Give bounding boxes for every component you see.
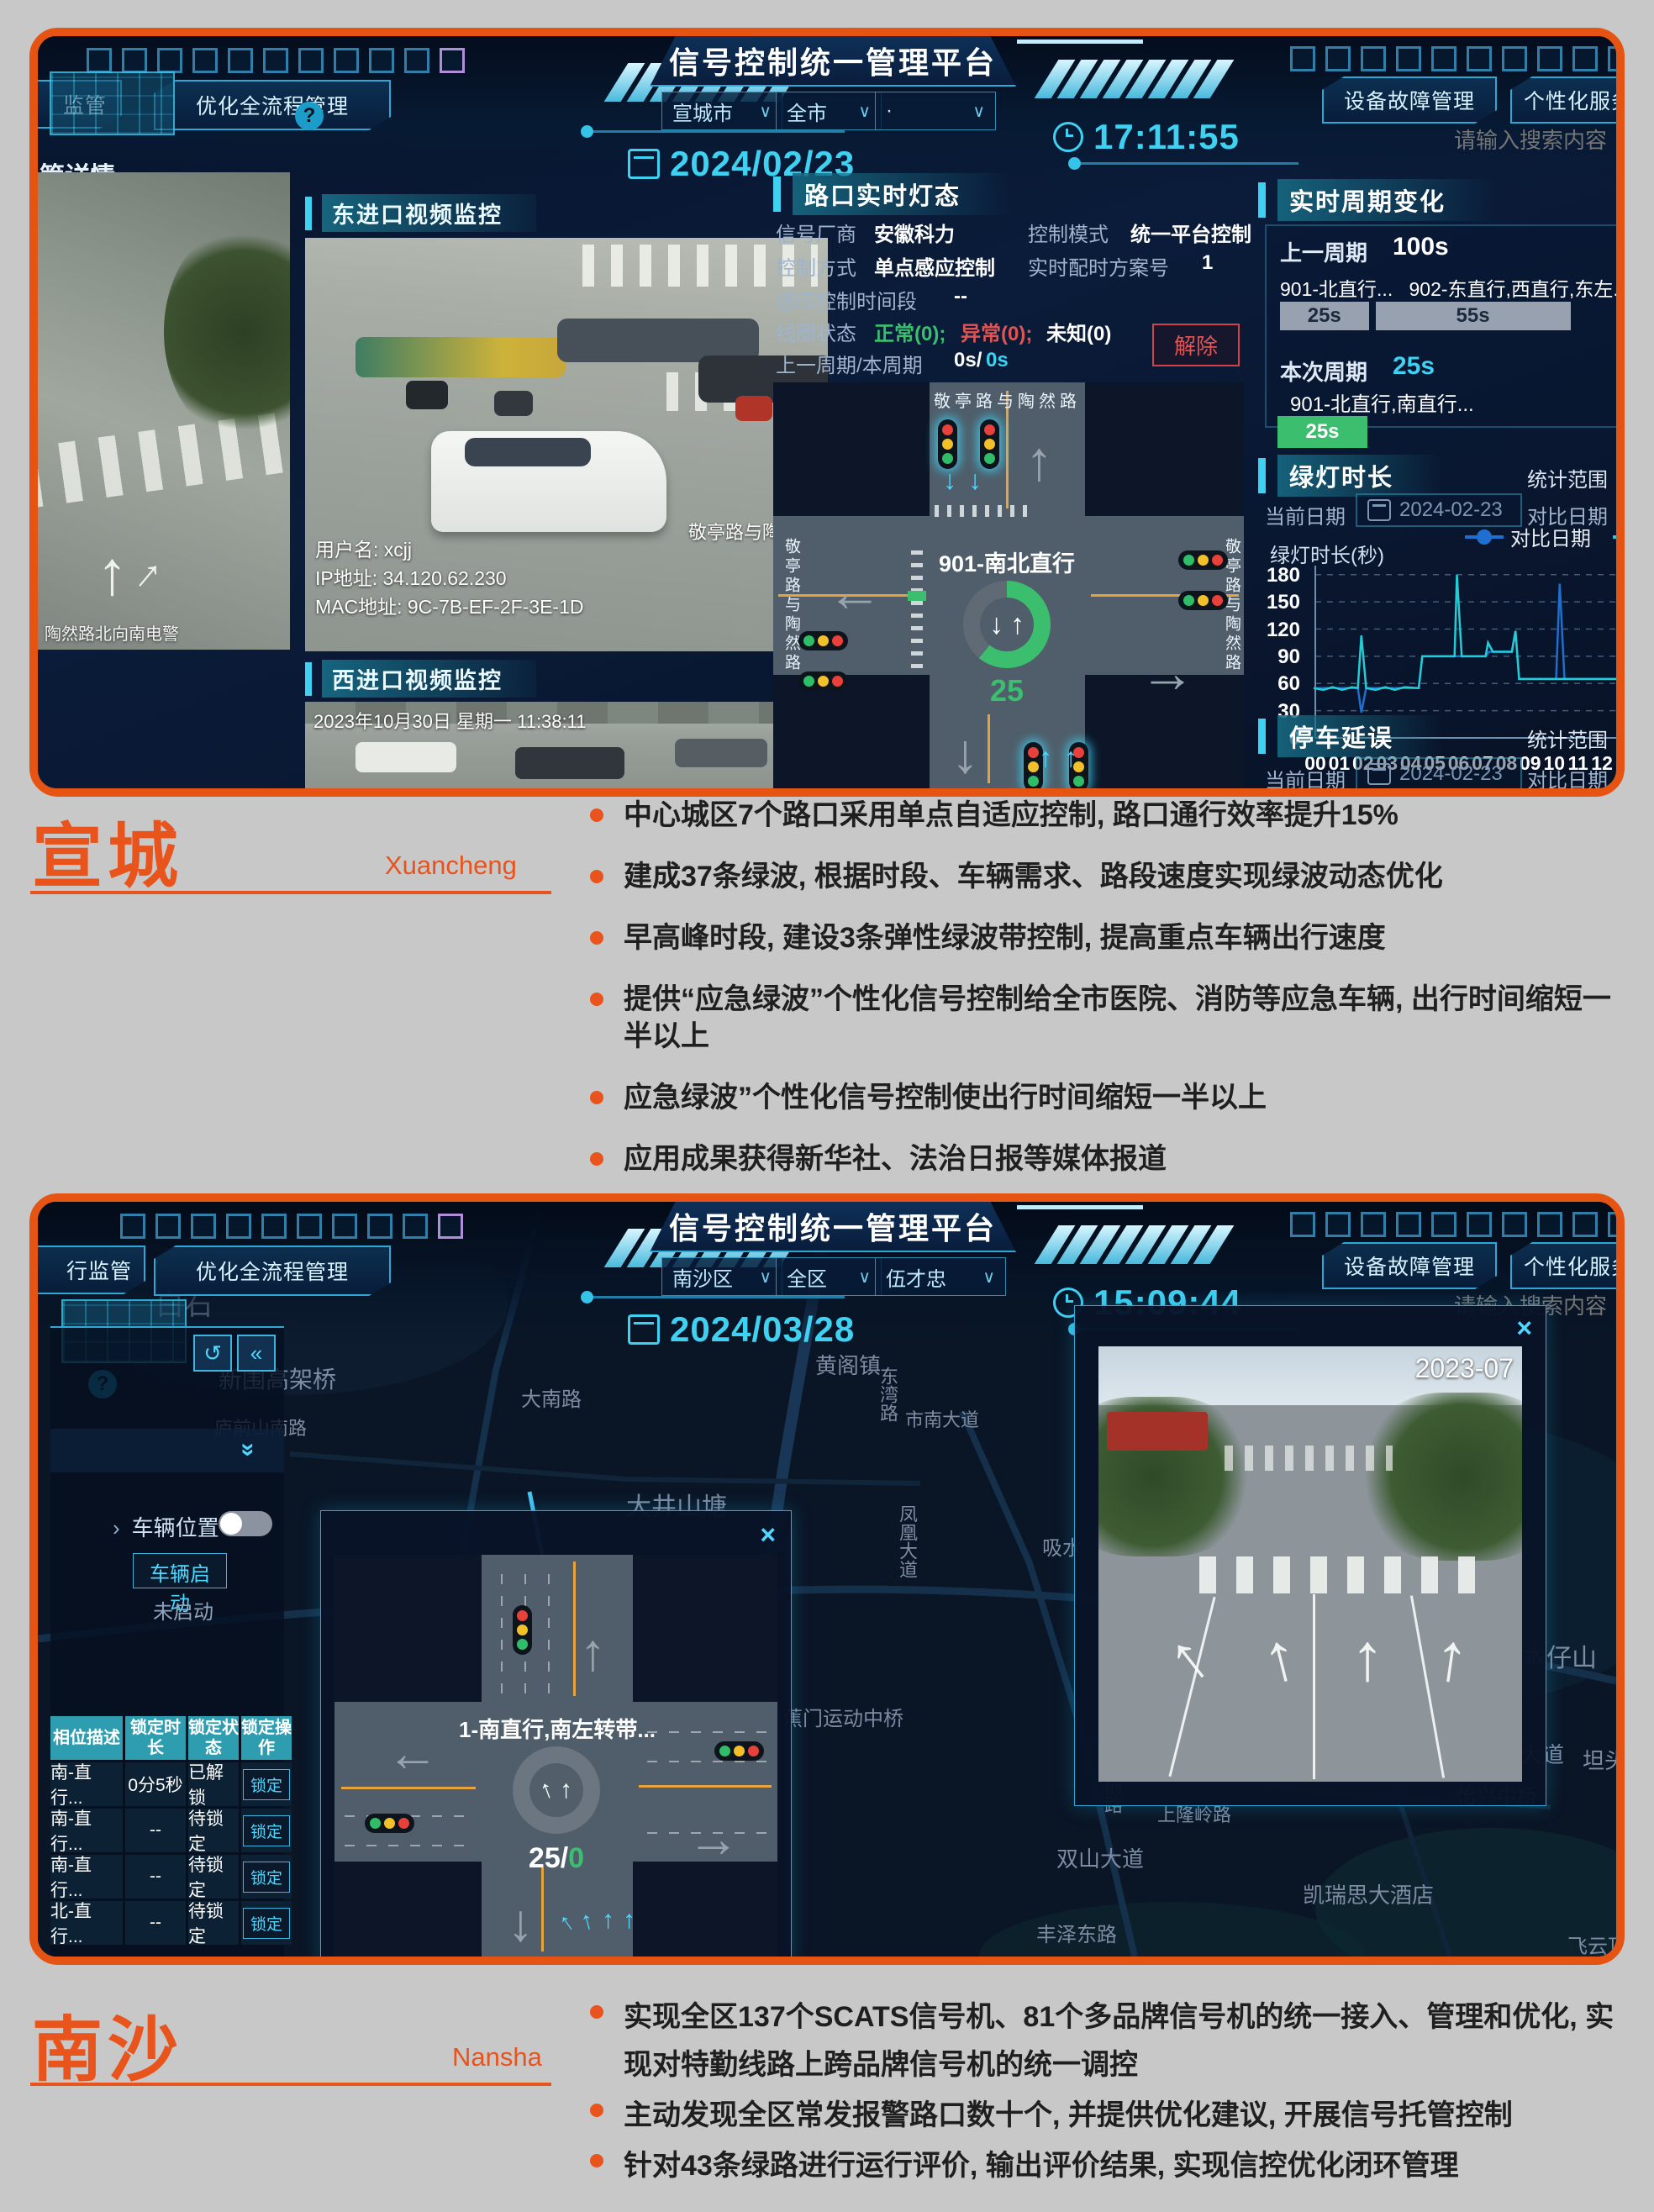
column-header: 相位描述 [50, 1716, 123, 1760]
traffic-light-icon [513, 1605, 532, 1655]
car [675, 739, 767, 767]
map-place-label: 大南路 [521, 1382, 582, 1412]
video-feed-east: 安徽 宣城 宣州 敬亭路与陶然路 用户名: xcjj IP地址: 34.120.… [305, 238, 828, 651]
field-label: 感应控制时间段 [776, 285, 917, 314]
video-label-west: 西进口视频监控 [305, 660, 536, 698]
phase-countdown-ring: ↓↑ [963, 581, 1051, 668]
cur-phase-name: 901-北直行,南直行... [1290, 387, 1474, 417]
district-select[interactable]: 南沙区∨ [661, 1257, 782, 1296]
map-place-label: 蕉门运动中桥 [782, 1702, 903, 1731]
direction-arrow: ↑ [580, 1627, 606, 1679]
legend-marker-icon [1465, 535, 1504, 539]
map-place-label: 坦头 [1583, 1744, 1616, 1775]
user-select[interactable]: 伍才忠∨ [875, 1257, 1006, 1296]
direction-arrow: ↓ [951, 725, 979, 781]
platform-title: 信号控制统一管理平台 [650, 1202, 1016, 1252]
road-arrow-marking: ↑ [1351, 1624, 1384, 1691]
motorbike [406, 381, 448, 409]
junction-diagram: ↑ ← → ↓ ↑↑↑↑ 1-南直行,南左转带... ↑↑ 25/0 [334, 1555, 777, 1957]
dashboard-nansha: ★ 白石新围高架桥黄阁镇大南路庐前山南路东湾路市南大道大井山塘凤凰大道吸水日本仔… [29, 1193, 1625, 1965]
vehicle-start-button[interactable]: 车辆启动 [133, 1553, 227, 1588]
map-place-label: 凤凰大道 [893, 1504, 920, 1578]
coil-normal: 正常(0); [874, 317, 946, 346]
lane-arrows: ↓↓ [943, 466, 993, 493]
table-cell: -- [125, 1901, 186, 1945]
video-feed-north: ↑ ↑ 陶然路北向南电警 [38, 172, 290, 650]
search-input[interactable] [1345, 127, 1609, 155]
sub-select[interactable]: ·∨ [875, 92, 996, 130]
cmp-date-label: 对比日期 [1527, 764, 1608, 788]
lock-button[interactable]: 锁定 [243, 1908, 290, 1939]
bullet-item: 应用成果获得新华社、法治日报等媒体报道 [588, 1140, 1639, 1177]
decor-squares [87, 48, 465, 73]
legend-item[interactable]: 当前日期 [1613, 522, 1616, 551]
cur-cycle-bar: 25s [1277, 416, 1367, 448]
traffic-light-icon [365, 1814, 414, 1833]
chart-legend: 对比日期当前日期 [1465, 522, 1616, 551]
collapse-bar[interactable]: » [50, 1429, 284, 1472]
cycle-bars: 25s55s [1280, 302, 1571, 330]
table-cell: -- [125, 1855, 186, 1899]
vehicle-position-toggle[interactable] [219, 1511, 272, 1536]
nav-button-process-management[interactable]: 优化全流程管理 [154, 1246, 391, 1296]
field-value: -- [954, 285, 967, 308]
divider [30, 2083, 551, 2086]
field-value: 统一平台控制 [1130, 218, 1251, 247]
help-icon[interactable]: ? [295, 102, 324, 130]
cur-date-label: 当前日期 [1265, 500, 1346, 529]
city-latin-xuancheng: Xuancheng [385, 851, 517, 881]
field-label: 控制方式 [776, 251, 856, 281]
decor-squares [120, 1214, 463, 1239]
table-row: 北-直行...--待锁定锁定 [50, 1901, 292, 1945]
truck [1107, 1412, 1208, 1451]
city-select[interactable]: 宣城市∨ [661, 92, 782, 130]
field-value: 单点感应控制 [874, 251, 995, 281]
close-icon[interactable]: × [760, 1521, 776, 1548]
decor-line [593, 1296, 845, 1298]
decor-accent [1017, 1205, 1143, 1209]
traffic-light-icon [714, 1741, 764, 1761]
field-label: 实时配时方案号 [1028, 251, 1169, 281]
calendar-icon [628, 149, 660, 179]
bullet-item: 建成37条绿波, 根据时段、车辆需求、路段速度实现绿波动态优化 [588, 858, 1639, 895]
phase-name: 902-东直行,西直行,东左... [1409, 273, 1617, 302]
lock-button[interactable]: 锁定 [243, 1769, 290, 1800]
video-label-east: 东进口视频监控 [305, 194, 536, 232]
y-tick-label: 120 [1267, 619, 1300, 642]
prev-cycle-label: 上一周期 [1280, 236, 1367, 267]
minimap-icon [50, 71, 175, 135]
traffic-light-icon [980, 419, 999, 469]
nav-button-device-fault[interactable]: 设备故障管理 [1322, 1242, 1497, 1289]
field-label: 上一周期/本周期 [776, 349, 923, 378]
chart-series-对比日期 [1314, 584, 1616, 713]
countdown-value: 25/0 [514, 1842, 598, 1875]
lane-arrows: ↑↑ [1039, 744, 1089, 771]
cycle-current: 0s [986, 349, 1009, 372]
traffic-light-icon [798, 671, 848, 691]
nav-button-device-fault[interactable]: 设备故障管理 [1322, 76, 1497, 124]
time-display: 17:11:55 [1053, 117, 1240, 157]
table-row: 南-直行...0分5秒已解锁锁定 [50, 1762, 292, 1806]
map-place-label: 凯瑞思大酒店 [1303, 1878, 1434, 1909]
decor-line [593, 130, 845, 133]
city-title-xuancheng: 宣城 [32, 800, 183, 902]
dashboard-xuancheng-screen: 监管 优化全流程管理 2024/02/23 信号控制统一管理平台 宣城市∨ 全市… [38, 36, 1616, 788]
cur-date-label: 当前日期 [1265, 764, 1346, 788]
phase-duration-bar: 55s [1376, 302, 1571, 330]
prev-cycle-value: 100s [1393, 233, 1449, 261]
clock-icon [1053, 122, 1083, 152]
phase-label: 901-南北直行 [906, 545, 1108, 578]
lock-table-head: 相位描述锁定时长锁定状态锁定操作 [50, 1716, 292, 1760]
field-label: 信号厂商 [776, 218, 856, 247]
trees [1362, 1393, 1522, 1561]
car [515, 747, 624, 779]
traffic-light-icon [798, 631, 848, 650]
road-name-north: 敬亭路与陶然路 [930, 387, 1085, 412]
platform-title: 信号控制统一管理平台 [650, 36, 1016, 87]
city-title-nansha: 南沙 [32, 1993, 183, 2095]
table-cell: 锁定 [241, 1762, 292, 1806]
traffic-light-icon [938, 419, 957, 469]
video-timestamp: 2023-07 [1415, 1353, 1514, 1384]
countdown-value: 25 [973, 673, 1040, 708]
field-value: 1 [1202, 251, 1213, 275]
left-sidebar: ↺ « » ›车辆位置 车辆启动 未启动 相位描述锁定时长锁定状态锁定操作 南-… [50, 1326, 284, 1957]
y-tick-label: 150 [1267, 591, 1300, 614]
phase-duration-bar: 25s [1280, 302, 1369, 330]
y-tick-label: 180 [1267, 564, 1300, 587]
camera-popup: × ↑ ↑ ↑ ↑ 2023-07 [1074, 1305, 1546, 1806]
cur-date-input[interactable]: 2024-02-23 [1356, 757, 1522, 788]
phase-name: 901-北直行... [1280, 273, 1403, 302]
map-place-label: 市南大道 [905, 1405, 979, 1432]
dashboard-nansha-screen: ★ 白石新围高架桥黄阁镇大南路庐前山南路东湾路市南大道大井山塘凤凰大道吸水日本仔… [38, 1202, 1616, 1957]
junction-popup: × [320, 1510, 792, 1957]
bullet-item: 针对43条绿路进行运行评价, 输出评价结果, 实现信控优化闭环管理 [588, 2142, 1639, 2190]
map-place-label: 双山大道 [1056, 1842, 1144, 1873]
y-tick-label: 90 [1277, 645, 1300, 669]
achievement-list-xuancheng: 中心城区7个路口采用单点自适应控制, 路口通行效率提升15%建成37条绿波, 根… [588, 797, 1639, 1202]
crosswalk-marking [1225, 1446, 1393, 1471]
bullet-item: 提供“应急绿波”个性化信号控制给全市医院、消防等应急车辆, 出行时间缩短一半以上 [588, 981, 1639, 1055]
table-cell: 待锁定 [188, 1809, 239, 1852]
field-value: 安徽科力 [874, 218, 955, 247]
map-place-label: 丰泽东路 [1036, 1918, 1117, 1947]
table-cell: 锁定 [241, 1855, 292, 1899]
decor-squares [1290, 46, 1616, 71]
direction-arrow: ← [827, 564, 882, 619]
decor-accent [1017, 39, 1143, 44]
device-info-overlay: 用户名: xcjj IP地址: 34.120.62.230 MAC地址: 9C-… [315, 535, 583, 621]
lock-table: 相位描述锁定时长锁定状态锁定操作 南-直行...0分5秒已解锁锁定南-直行...… [50, 1716, 292, 1947]
column-header: 锁定操作 [241, 1716, 292, 1760]
vehicle-position-row: ›车辆位置 [113, 1511, 219, 1542]
table-cell: 锁定 [241, 1809, 292, 1852]
range-label: 统计范围 [1527, 724, 1608, 753]
direction-arrow: → [1140, 645, 1195, 700]
decor-line [1080, 162, 1298, 165]
cycle-bar-labels: 901-北直行...902-东直行,西直行,东左... [1280, 273, 1616, 302]
direction-arrow: ↓ [508, 1898, 534, 1950]
column-header: 锁定时长 [125, 1716, 186, 1760]
table-cell: 北-直行... [50, 1901, 123, 1945]
page: 监管 优化全流程管理 2024/02/23 信号控制统一管理平台 宣城市∨ 全市… [0, 0, 1654, 2212]
direction-arrow: → [687, 1814, 740, 1866]
nav-button-personal-service[interactable]: 个性化服务管理 [1510, 76, 1616, 124]
road-arrow-marking: ↑ [97, 542, 128, 604]
camera-watermark: 陶然路北向南电警 [45, 620, 179, 645]
lock-button[interactable]: 锁定 [243, 1815, 290, 1846]
map-place-label: 东湾路 [874, 1367, 901, 1422]
vehicle-status: 未启动 [153, 1595, 213, 1625]
panel-title-parking-delay: 停车延误 [1258, 715, 1444, 757]
motorbike [494, 391, 533, 416]
undo-button[interactable]: ↺ [193, 1335, 232, 1372]
column-header: 锁定状态 [188, 1716, 239, 1760]
table-cell: 南-直行... [50, 1762, 123, 1806]
coil-unknown: 未知(0) [1046, 317, 1111, 346]
panel-title-light-state: 路口实时灯态 [773, 173, 1011, 215]
table-cell: 已解锁 [188, 1762, 239, 1806]
map-place-label: 飞云顶 [1567, 1930, 1616, 1957]
collapse-button[interactable]: « [237, 1335, 276, 1372]
direction-arrow: ↑ [1025, 433, 1053, 488]
decor-squares [1290, 1212, 1616, 1237]
road-name-west: 敬亭路与陶然路 [780, 538, 803, 673]
bullet-item: 早高峰时段, 建设3条弹性绿波带控制, 提高重点车辆出行速度 [588, 919, 1639, 956]
phase-countdown-ring: ↑↑ [513, 1746, 600, 1834]
video-feed-west: 2023年10月30日 星期一 11:38:11 [305, 702, 828, 788]
scope-select[interactable]: 全市∨ [776, 92, 882, 130]
chevron-double-down-icon: » [234, 1443, 263, 1457]
range-label: 统计范围 [1527, 463, 1608, 492]
achievement-list-nansha: 实现全区137个SCATS信号机、81个多品牌信号机的统一接入、管理和优化, 实… [588, 1993, 1639, 2193]
legend-marker-icon [1613, 535, 1616, 539]
field-label: 控制模式 [1028, 218, 1109, 247]
close-icon[interactable]: × [1516, 1314, 1532, 1341]
divider [30, 891, 551, 894]
legend-item[interactable]: 对比日期 [1465, 522, 1591, 551]
lock-button[interactable]: 锁定 [243, 1862, 290, 1893]
panel-title-green-time: 绿灯时长 [1258, 455, 1444, 497]
coil-abnormal: 异常(0); [961, 317, 1032, 346]
panel-title-cycle: 实时周期变化 [1258, 179, 1496, 221]
phase-label: 1-南直行,南左转带... [423, 1713, 692, 1744]
decor-slashes [1046, 1225, 1222, 1264]
dashboard-xuancheng: 监管 优化全流程管理 2024/02/23 信号控制统一管理平台 宣城市∨ 全市… [29, 28, 1625, 797]
chart-series-当前日期 [1314, 575, 1616, 690]
table-cell: 锁定 [241, 1901, 292, 1945]
nav-button-operation-supervision[interactable]: 行监管 [38, 1246, 145, 1294]
bullet-item: 主动发现全区常发报警路口数十个, 并提供优化建议, 开展信号托管控制 [588, 2092, 1639, 2140]
table-cell: 待锁定 [188, 1901, 239, 1945]
field-label: 线圈状态 [776, 317, 856, 346]
bullet-item: 中心城区7个路口采用单点自适应控制, 路口通行效率提升15% [588, 797, 1639, 834]
calendar-icon [628, 1314, 660, 1345]
car [356, 742, 456, 772]
table-cell: -- [125, 1809, 186, 1852]
taxi [356, 337, 566, 377]
nav-button-personal-service[interactable]: 个性化服务管理 [1510, 1242, 1616, 1289]
x-tick-label: 13 [1609, 752, 1616, 775]
scope-select[interactable]: 全区∨ [776, 1257, 882, 1296]
bullet-item: 实现全区137个SCATS信号机、81个多品牌信号机的统一接入、管理和优化, 实… [588, 1993, 1639, 2089]
table-cell: 0分5秒 [125, 1762, 186, 1806]
decor-slashes [1046, 60, 1222, 98]
cur-cycle-value: 25s [1393, 352, 1435, 381]
city-latin-nansha: Nansha [452, 2042, 542, 2072]
nav-button-process-management[interactable]: 优化全流程管理 [154, 80, 391, 130]
table-row: 南-直行...--待锁定锁定 [50, 1809, 292, 1852]
y-tick-label: 60 [1277, 672, 1300, 696]
cycle-prev: 0s/ [954, 349, 982, 372]
bullet-item: 应急绿波”个性化信号控制使出行时间缩短一半以上 [588, 1079, 1639, 1116]
lane-arrows: ↑↑↑↑ [560, 1908, 644, 1933]
table-row: 南-直行...--待锁定锁定 [50, 1855, 292, 1899]
lock-table-body: 南-直行...0分5秒已解锁锁定南-直行...--待锁定锁定南-直行...--待… [50, 1762, 292, 1945]
table-cell: 南-直行... [50, 1855, 123, 1899]
lane-line [1313, 1594, 1315, 1779]
motorbike [735, 396, 772, 421]
video-timestamp: 2023年10月30日 星期一 11:38:11 [313, 707, 586, 734]
intersection-diagram: 敬亭路与陶然路 敬亭路与陶然路 敬亭路与陶然路 ↑ ← → ↓ ↓↓ ↑↑ 90… [773, 382, 1244, 788]
map-place-label: 黄阁镇 [815, 1349, 881, 1380]
date-display: 2024/03/28 [628, 1309, 855, 1350]
crosswalk-marking [1199, 1556, 1485, 1593]
camera-feed: ↑ ↑ ↑ ↑ 2023-07 [1098, 1346, 1522, 1782]
suv-windows [465, 438, 591, 466]
cur-cycle-label: 本次周期 [1280, 355, 1367, 387]
release-button[interactable]: 解除 [1152, 324, 1240, 366]
table-cell: 待锁定 [188, 1855, 239, 1899]
table-cell: 南-直行... [50, 1809, 123, 1852]
